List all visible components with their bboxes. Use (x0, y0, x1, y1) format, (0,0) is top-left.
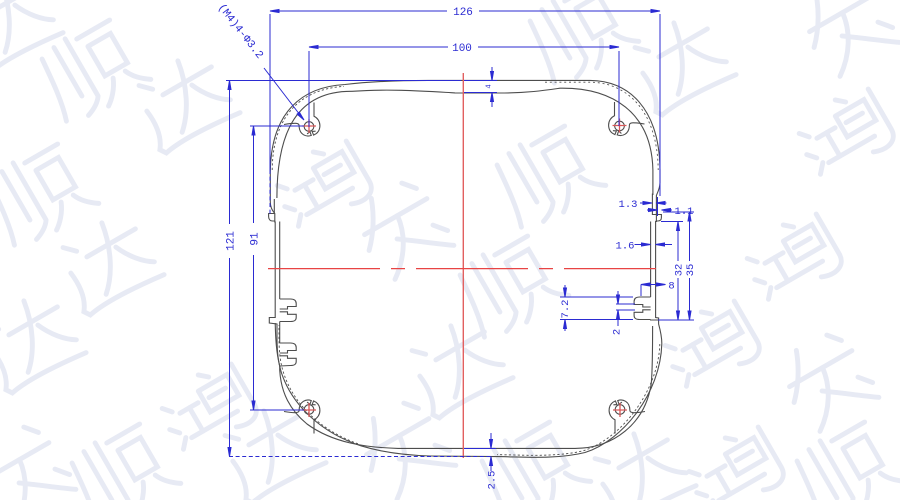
svg-text:2: 2 (612, 329, 624, 335)
svg-text:4: 4 (486, 84, 494, 88)
svg-text:126: 126 (453, 7, 473, 19)
svg-text:121: 121 (225, 231, 237, 251)
svg-text:32: 32 (674, 264, 686, 277)
svg-text:(M4)4-Φ3.2: (M4)4-Φ3.2 (215, 2, 265, 61)
svg-text:35: 35 (685, 264, 697, 277)
svg-text:1.3: 1.3 (619, 199, 638, 211)
svg-text:2.5: 2.5 (487, 471, 499, 490)
svg-text:91: 91 (249, 232, 261, 246)
svg-text:100: 100 (452, 43, 472, 55)
svg-text:1.6: 1.6 (616, 240, 635, 252)
svg-text:7.2: 7.2 (560, 300, 572, 319)
svg-text:8: 8 (668, 280, 674, 292)
